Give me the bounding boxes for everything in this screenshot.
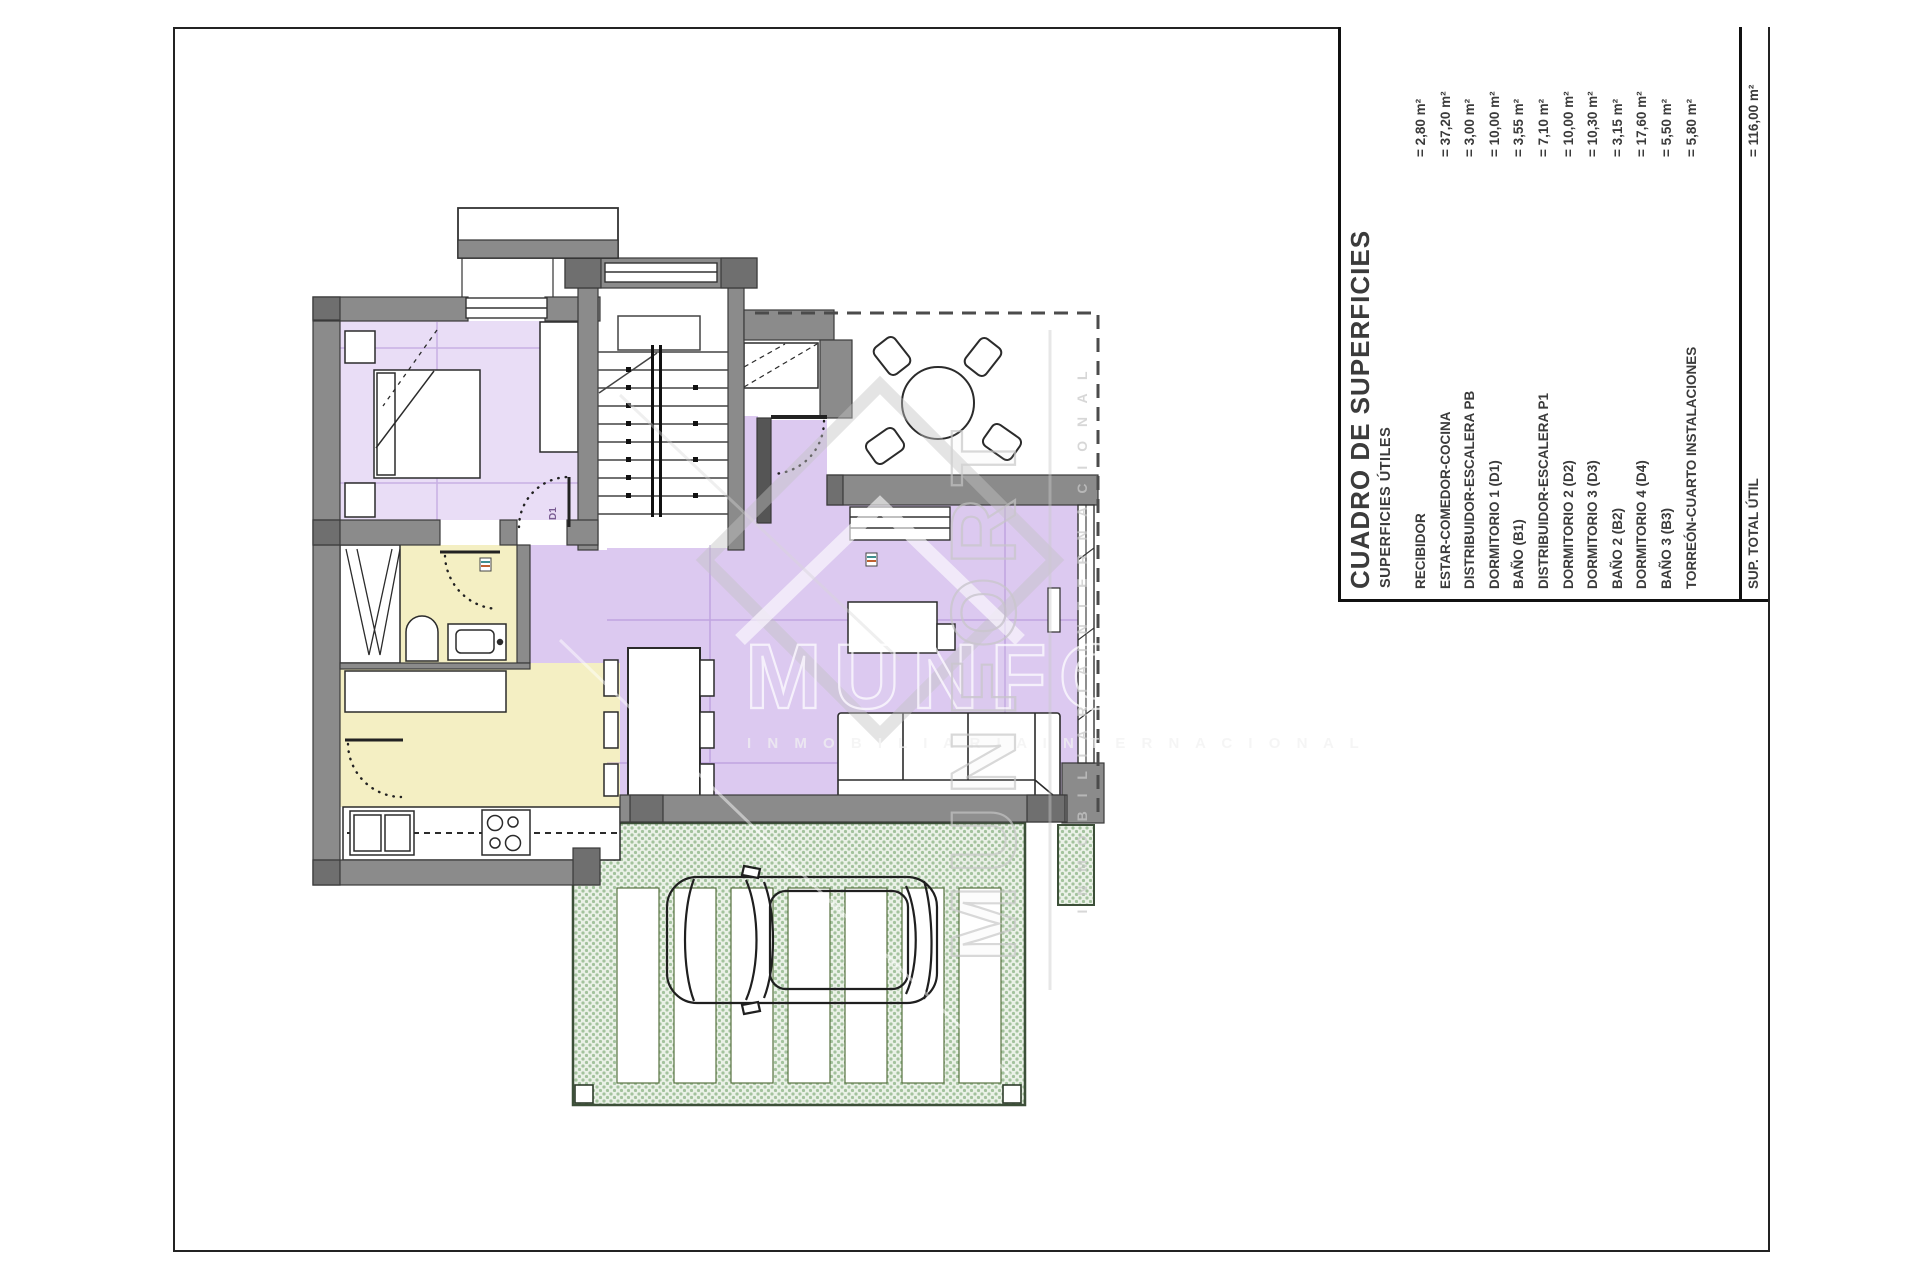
row-value: = 10,30 m²: [1585, 91, 1600, 157]
row-value: = 37,20 m²: [1438, 91, 1453, 157]
row-value: = 3,15 m²: [1610, 99, 1625, 157]
table-row: DISTRIBUIDOR-ESCALERA P1= 7,10 m²: [1536, 31, 1561, 589]
chair: [700, 660, 714, 696]
total-label: SUP. TOTAL ÚTIL: [1746, 478, 1761, 589]
chair: [700, 712, 714, 748]
surfaces-table-subtitle: SUPERFICIES ÚTILES: [1378, 427, 1394, 588]
door-tag-icon: [480, 558, 491, 571]
row-value: = 2,80 m²: [1413, 99, 1428, 157]
pergola-post: [1003, 1085, 1021, 1103]
surfaces-table: CUADRO DE SUPERFICIES SUPERFICIES ÚTILES…: [1338, 27, 1768, 602]
total-separator: [1739, 27, 1742, 599]
dining-table: [628, 648, 700, 812]
row-label: ESTAR-COMEDOR-COCINA: [1438, 412, 1453, 590]
wardrobe: [540, 322, 578, 452]
door-tag-icon: [866, 553, 877, 566]
bedroom-door-label: D1: [548, 507, 559, 520]
pergola-post: [575, 1085, 593, 1103]
row-label: TORREÓN-CUARTO INSTALACIONES: [1684, 347, 1699, 589]
row-label: DORMITORIO 2 (D2): [1561, 460, 1576, 589]
table-row: BAÑO 2 (B2)= 3,15 m²: [1610, 31, 1635, 589]
row-value: = 3,00 m²: [1462, 99, 1477, 157]
row-label: BAÑO 3 (B3): [1659, 508, 1674, 589]
row-label: DISTRIBUIDOR-ESCALERA P1: [1536, 393, 1551, 589]
table-row: RECIBIDOR= 2,80 m²: [1413, 31, 1438, 589]
table-row: ESTAR-COMEDOR-COCINA= 37,20 m²: [1438, 31, 1463, 589]
chair: [700, 764, 714, 796]
chair: [604, 712, 618, 748]
total-row: SUP. TOTAL ÚTIL = 116,00 m²: [1746, 31, 1770, 589]
total-value: = 116,00 m²: [1746, 85, 1761, 157]
table-row: DORMITORIO 3 (D3)= 10,30 m²: [1585, 31, 1610, 589]
row-label: DISTRIBUIDOR-ESCALERA PB: [1462, 391, 1477, 589]
table-row: BAÑO (B1)= 3,55 m²: [1511, 31, 1536, 589]
row-label: DORMITORIO 1 (D1): [1487, 460, 1502, 589]
row-label: RECIBIDOR: [1413, 513, 1428, 589]
nightstand: [345, 483, 375, 517]
row-label: BAÑO (B1): [1511, 519, 1526, 589]
table-row: DORMITORIO 2 (D2)= 10,00 m²: [1561, 31, 1586, 589]
row-value: = 10,00 m²: [1487, 91, 1502, 157]
table-row: DISTRIBUIDOR-ESCALERA PB= 3,00 m²: [1462, 31, 1487, 589]
row-value: = 7,10 m²: [1536, 99, 1551, 157]
row-value: = 3,55 m²: [1511, 99, 1526, 157]
surfaces-table-title: CUADRO DE SUPERFICIES: [1345, 230, 1376, 589]
row-label: BAÑO 2 (B2): [1610, 508, 1625, 589]
chair: [604, 764, 618, 796]
watermark-tagline-vertical: I N M O B I L I A R I A I N T E R N A C …: [1074, 366, 1090, 913]
table-row: DORMITORIO 1 (D1)= 10,00 m²: [1487, 31, 1512, 589]
table-row: BAÑO 3 (B3)= 5,50 m²: [1659, 31, 1684, 589]
row-label: DORMITORIO 4 (D4): [1634, 460, 1649, 589]
shower: [406, 616, 438, 661]
watermark-tagline-horizontal: I N M O B I L I A R I A I N T E R N A C …: [747, 735, 1365, 752]
stove: [482, 810, 530, 855]
watermark-brand-vertical: MUNFORT: [933, 418, 1035, 962]
row-value: = 17,60 m²: [1634, 91, 1649, 157]
nightstand: [345, 331, 375, 363]
table-row: TORREÓN-CUARTO INSTALACIONES= 5,80 m²: [1684, 31, 1709, 589]
row-label: DORMITORIO 3 (D3): [1585, 460, 1600, 589]
row-value: = 5,50 m²: [1659, 99, 1674, 157]
table-row: DORMITORIO 4 (D4)= 17,60 m²: [1634, 31, 1659, 589]
drawing-sheet: D1 MUNFORT I N M O B I L I A R I A I N T…: [0, 0, 1920, 1280]
row-value: = 5,80 m²: [1684, 99, 1699, 157]
surfaces-table-rows: RECIBIDOR= 2,80 m² ESTAR-COMEDOR-COCINA=…: [1413, 31, 1708, 589]
bench-counter: [345, 671, 506, 712]
row-value: = 10,00 m²: [1561, 91, 1576, 157]
